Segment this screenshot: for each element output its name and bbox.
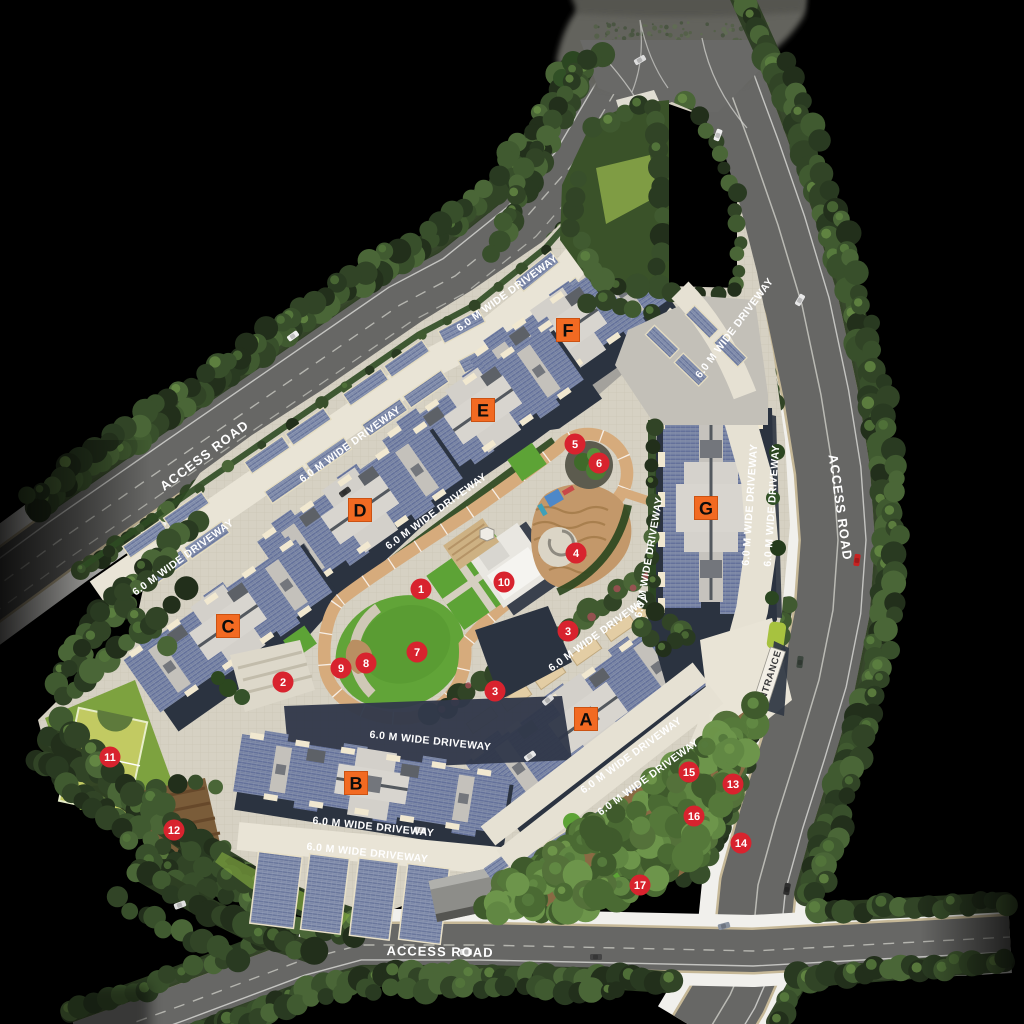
- svg-text:11: 11: [104, 752, 116, 764]
- svg-text:15: 15: [683, 767, 695, 779]
- svg-text:2: 2: [280, 677, 286, 689]
- svg-text:C: C: [222, 617, 235, 637]
- svg-text:10: 10: [498, 577, 510, 589]
- svg-text:G: G: [699, 499, 713, 519]
- svg-text:1: 1: [418, 584, 424, 596]
- svg-text:3: 3: [565, 626, 571, 638]
- svg-text:3: 3: [492, 686, 498, 698]
- svg-text:5: 5: [572, 439, 578, 451]
- svg-text:4: 4: [573, 548, 580, 560]
- svg-text:7: 7: [414, 647, 420, 659]
- svg-text:A: A: [580, 710, 593, 730]
- svg-text:17: 17: [634, 880, 646, 892]
- svg-text:6: 6: [596, 458, 602, 470]
- svg-text:F: F: [563, 321, 574, 341]
- svg-text:14: 14: [735, 838, 748, 850]
- svg-text:B: B: [350, 774, 363, 794]
- svg-text:8: 8: [363, 658, 369, 670]
- svg-text:12: 12: [168, 825, 180, 837]
- svg-text:E: E: [477, 401, 489, 421]
- svg-text:16: 16: [688, 811, 700, 823]
- svg-text:ACCESS ROAD: ACCESS ROAD: [386, 943, 493, 960]
- svg-text:9: 9: [338, 663, 344, 675]
- svg-text:13: 13: [727, 779, 739, 791]
- svg-text:D: D: [354, 501, 367, 521]
